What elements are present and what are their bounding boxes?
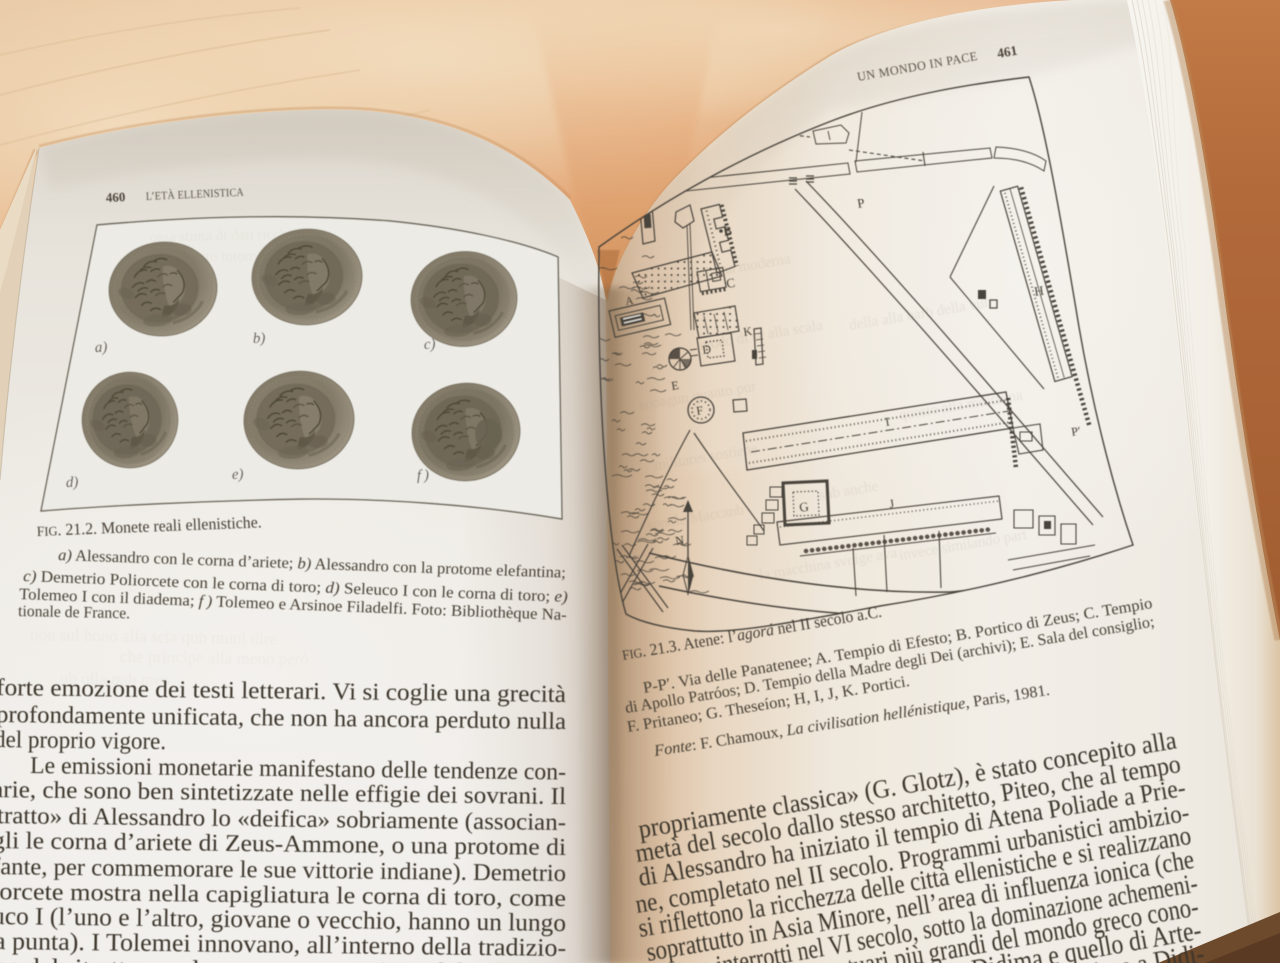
svg-text:a): a): [95, 340, 108, 356]
svg-text:del proprio vigore.: del proprio vigore.: [0, 727, 166, 755]
svg-text:che principe alla meno però: che principe alla meno però: [120, 647, 309, 669]
svg-text:c): c): [424, 337, 436, 353]
svg-text:d): d): [66, 475, 79, 491]
svg-text:tionale de France.: tionale de France.: [18, 603, 130, 622]
svg-text:460: 460: [105, 189, 125, 205]
svg-text:e): e): [232, 467, 244, 483]
svg-text:b): b): [253, 331, 266, 347]
svg-text:f ): f ): [417, 468, 430, 484]
